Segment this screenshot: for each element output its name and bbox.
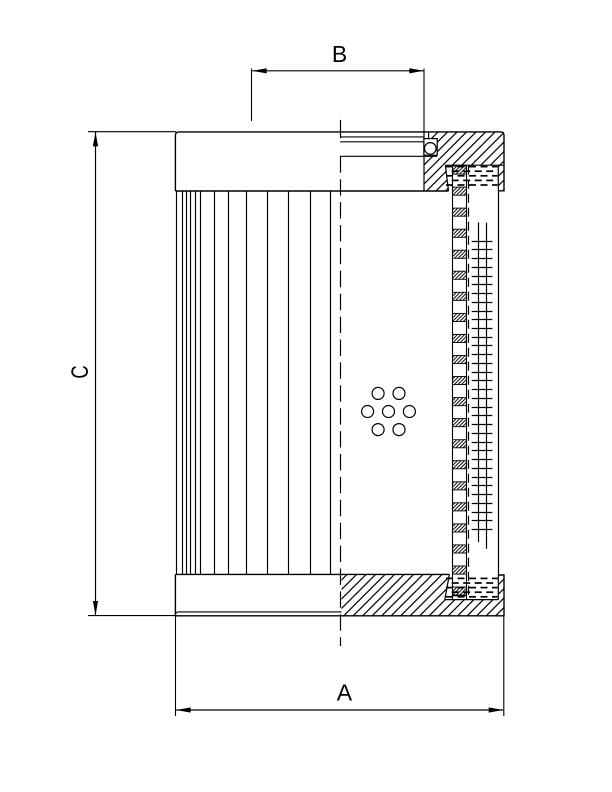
- svg-text:B: B: [332, 41, 347, 67]
- svg-text:C: C: [67, 365, 94, 379]
- svg-text:A: A: [337, 680, 353, 706]
